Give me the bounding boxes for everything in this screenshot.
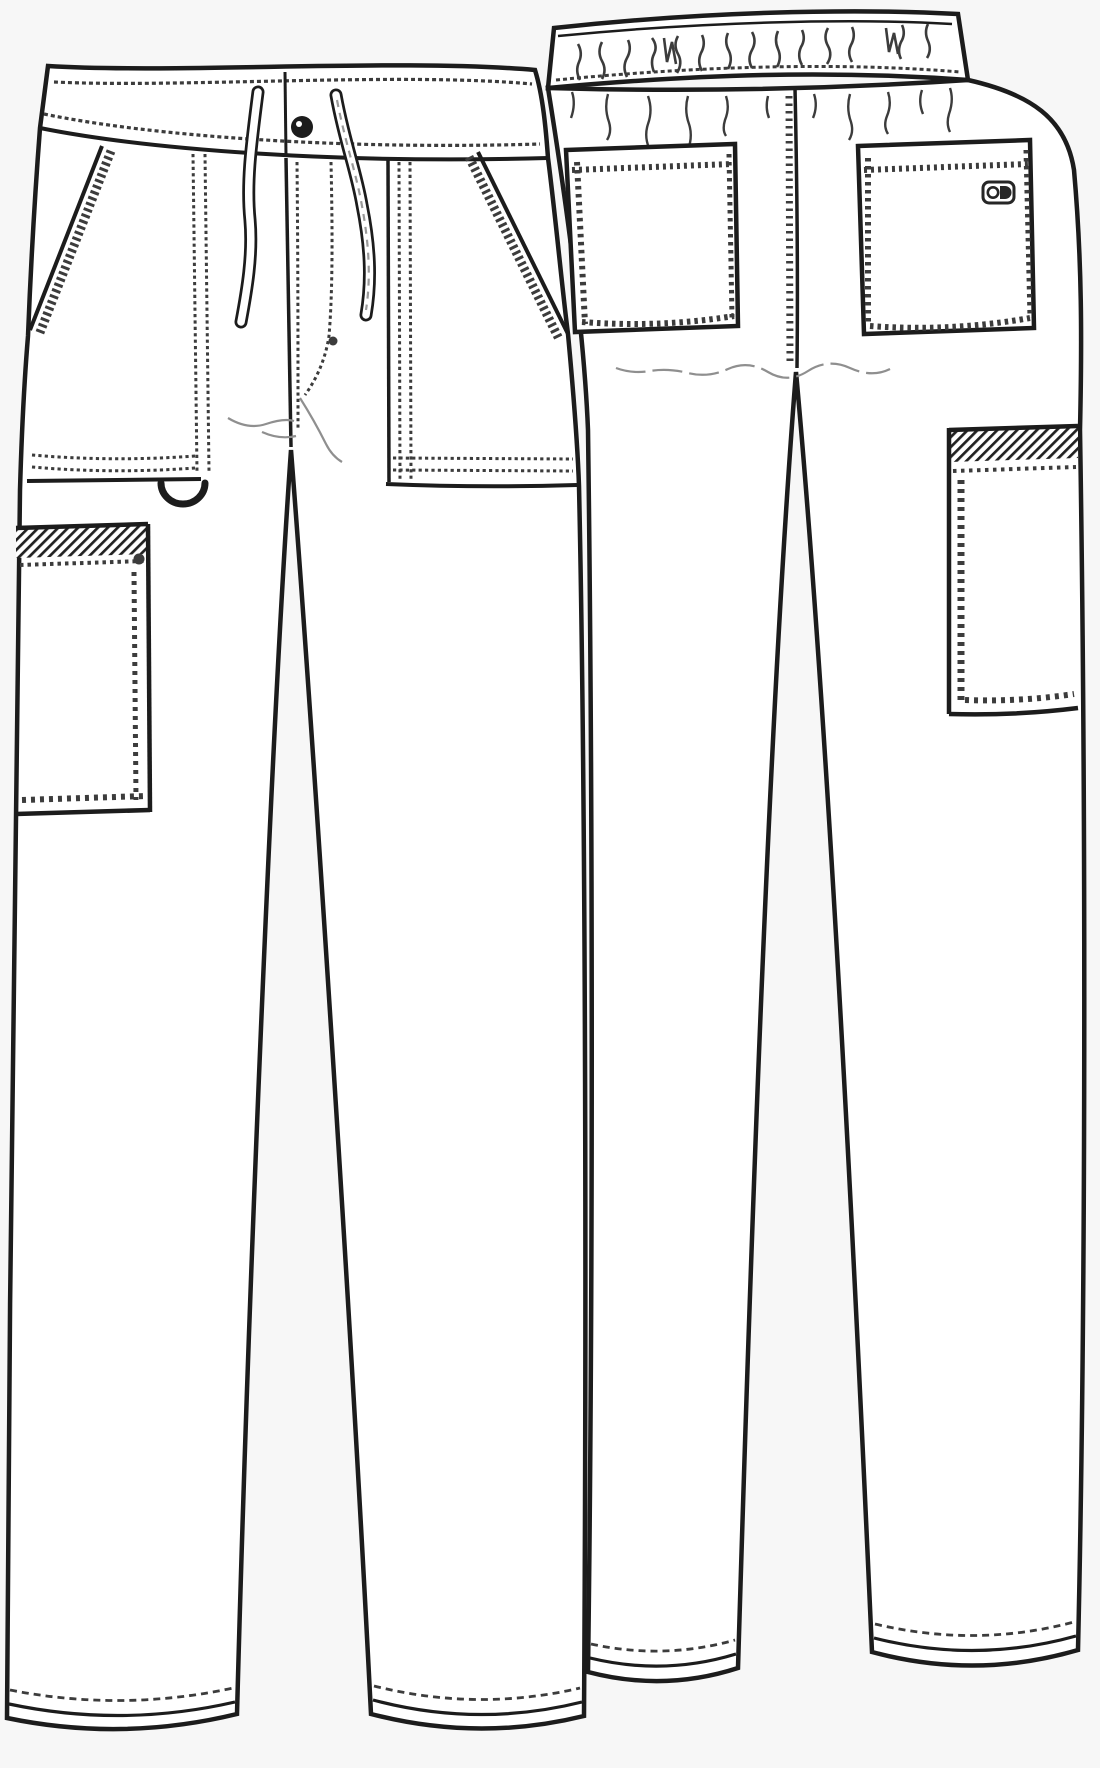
fly-bartack-dot [329,337,338,346]
cargo-bartack-dot [134,554,145,565]
bag-bottom-edge [27,479,201,481]
pants-front-view [7,65,585,1729]
bag-bottom-edge [386,484,577,486]
pocket-outline [566,144,738,332]
pocket-outline [858,140,1034,334]
scrub-pants-flat-sketch [0,0,1100,1768]
technical-flat-canvas [0,0,1100,1768]
back-pocket-right [858,140,1034,334]
front-body-outline [7,65,585,1729]
overlock-stitch-right [729,154,732,318]
back-waistband-elastic [548,11,968,88]
bag-edge-vertical [388,160,389,482]
pants-back-view [548,11,1084,1681]
drawstring-button [291,116,313,138]
back-pocket-left [566,144,738,332]
center-front-line [285,72,286,156]
cargo-right-edge [148,524,150,812]
drawstring-button-highlight [296,121,302,127]
